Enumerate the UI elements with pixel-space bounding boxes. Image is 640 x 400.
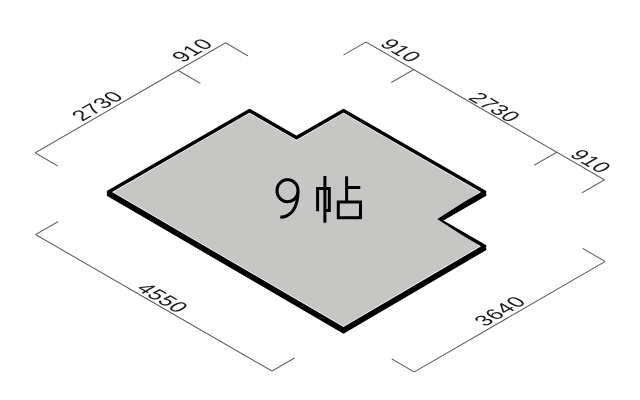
- svg-text:910: 910: [167, 36, 219, 66]
- svg-text:2730: 2730: [67, 88, 129, 124]
- svg-text:910: 910: [564, 147, 616, 177]
- svg-text:910: 910: [374, 36, 426, 66]
- svg-text:3640: 3640: [469, 293, 531, 329]
- svg-text:2730: 2730: [463, 90, 525, 126]
- svg-text:4550: 4550: [131, 280, 193, 316]
